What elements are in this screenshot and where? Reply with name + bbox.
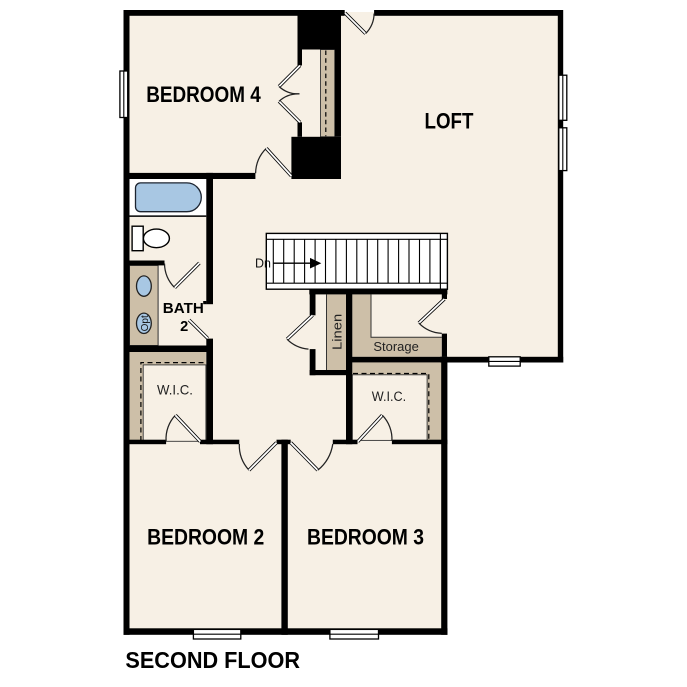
svg-text:Storage: Storage xyxy=(373,339,418,354)
svg-text:W.I.C.: W.I.C. xyxy=(157,382,193,398)
svg-text:BEDROOM 3: BEDROOM 3 xyxy=(307,524,424,549)
svg-text:SECOND FLOOR: SECOND FLOOR xyxy=(125,647,300,673)
svg-text:W.I.C.: W.I.C. xyxy=(372,389,406,404)
svg-text:LOFT: LOFT xyxy=(425,108,474,133)
svg-text:Dn: Dn xyxy=(255,257,271,271)
svg-text:BEDROOM 2: BEDROOM 2 xyxy=(147,524,264,549)
svg-text:BATH: BATH xyxy=(163,301,204,317)
svg-text:2: 2 xyxy=(180,319,188,335)
svg-text:Opt: Opt xyxy=(140,315,151,331)
svg-text:BEDROOM 4: BEDROOM 4 xyxy=(146,82,261,107)
svg-text:Linen: Linen xyxy=(329,314,344,350)
